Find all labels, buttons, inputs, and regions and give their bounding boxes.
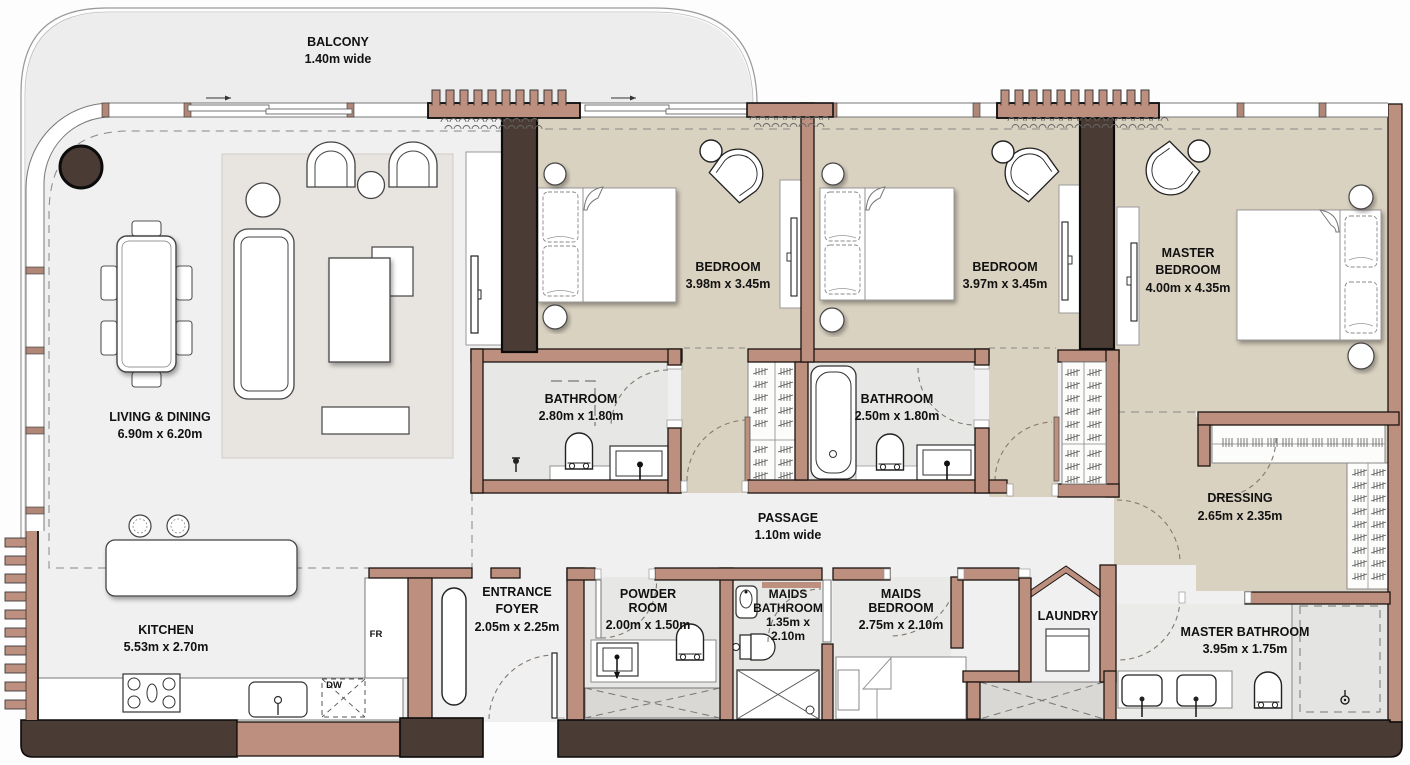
svg-text:3.97m x 3.45m: 3.97m x 3.45m <box>963 277 1048 291</box>
svg-text:BATHROOM: BATHROOM <box>545 392 618 406</box>
svg-text:MASTER: MASTER <box>1162 246 1215 260</box>
svg-text:BEDROOM: BEDROOM <box>1155 263 1220 277</box>
svg-text:3.98m x 3.45m: 3.98m x 3.45m <box>686 277 771 291</box>
svg-text:2.80m x 1.80m: 2.80m x 1.80m <box>539 409 624 423</box>
svg-text:LAUNDRY: LAUNDRY <box>1038 609 1099 623</box>
svg-text:MASTER BATHROOM: MASTER BATHROOM <box>1181 625 1310 639</box>
svg-text:1.35m x: 1.35m x <box>766 615 810 629</box>
svg-text:5.53m x 2.70m: 5.53m x 2.70m <box>124 640 209 654</box>
svg-text:POWDER: POWDER <box>620 587 676 601</box>
svg-text:2.05m x 2.25m: 2.05m x 2.25m <box>475 620 560 634</box>
svg-text:2.75m x 2.10m: 2.75m x 2.10m <box>859 618 944 632</box>
svg-text:KITCHEN: KITCHEN <box>138 623 194 637</box>
svg-text:DW: DW <box>326 680 342 691</box>
svg-text:MAIDS: MAIDS <box>769 587 808 601</box>
svg-text:LIVING & DINING: LIVING & DINING <box>109 410 210 424</box>
svg-text:FR: FR <box>370 629 383 640</box>
svg-text:DRESSING: DRESSING <box>1207 491 1272 505</box>
svg-text:ROOM: ROOM <box>629 601 668 615</box>
svg-text:6.90m x 6.20m: 6.90m x 6.20m <box>118 427 203 441</box>
svg-text:MAIDS: MAIDS <box>881 587 921 601</box>
svg-text:1.10m wide: 1.10m wide <box>755 528 822 542</box>
svg-text:BEDROOM: BEDROOM <box>695 260 760 274</box>
svg-text:3.95m x 1.75m: 3.95m x 1.75m <box>1203 642 1288 656</box>
svg-text:BEDROOM: BEDROOM <box>868 601 933 615</box>
svg-text:ENTRANCE: ENTRANCE <box>482 585 551 599</box>
svg-text:2.00m x 1.50m: 2.00m x 1.50m <box>606 618 691 632</box>
svg-text:BALCONY: BALCONY <box>307 35 369 49</box>
svg-text:BATHROOM: BATHROOM <box>861 392 934 406</box>
svg-text:BEDROOM: BEDROOM <box>972 260 1037 274</box>
svg-text:PASSAGE: PASSAGE <box>758 511 818 525</box>
svg-text:2.10m: 2.10m <box>771 629 805 643</box>
svg-text:1.40m wide: 1.40m wide <box>305 52 372 66</box>
svg-text:2.65m x 2.35m: 2.65m x 2.35m <box>1198 509 1283 523</box>
svg-text:2.50m x 1.80m: 2.50m x 1.80m <box>855 409 940 423</box>
svg-text:BATHROOM: BATHROOM <box>753 601 823 615</box>
svg-text:4.00m x 4.35m: 4.00m x 4.35m <box>1146 281 1231 295</box>
svg-text:FOYER: FOYER <box>495 602 538 616</box>
